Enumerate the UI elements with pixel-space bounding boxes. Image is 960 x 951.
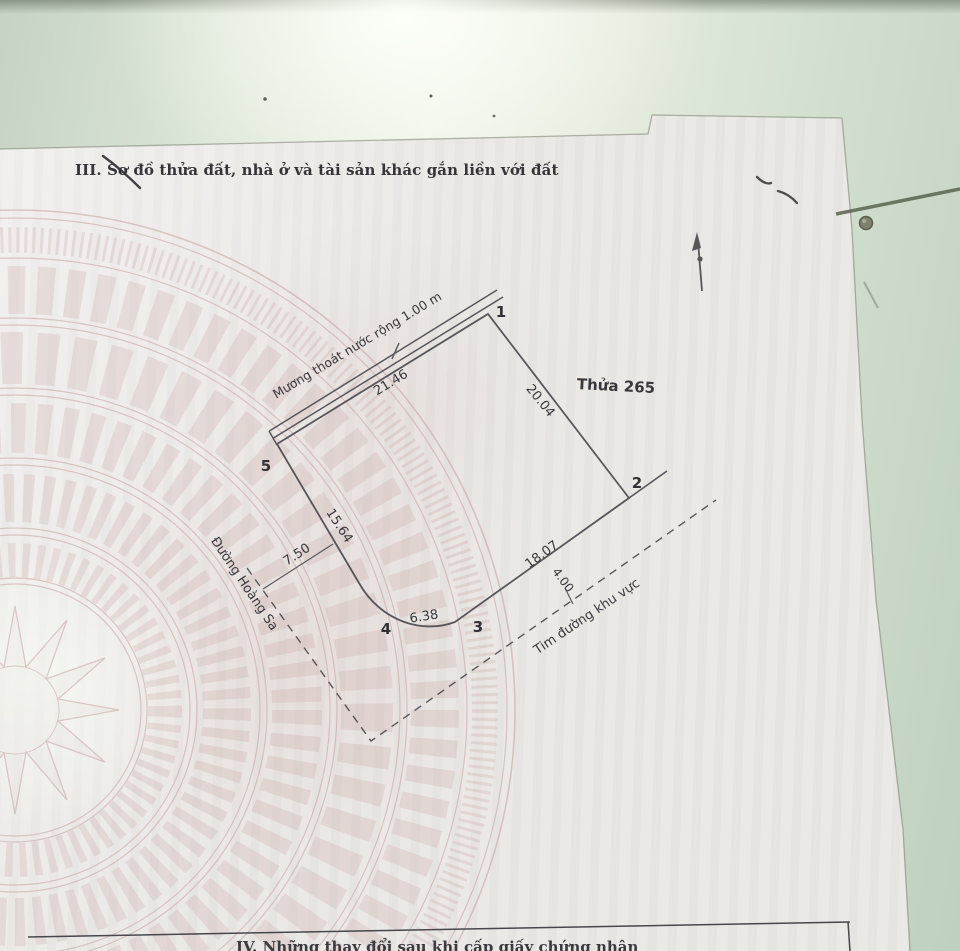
speck-2 <box>430 95 433 98</box>
vertex-label-2: 2 <box>632 474 642 492</box>
vertex-label-1: 1 <box>496 303 506 321</box>
scratch-on-glass <box>864 282 878 308</box>
speck-3 <box>493 115 496 118</box>
north-arrow <box>692 232 703 291</box>
screw-highlight <box>862 219 866 223</box>
cadastral-drawing <box>0 0 960 951</box>
screw <box>860 217 873 230</box>
pen-mark-2 <box>778 191 797 203</box>
next-section-title: IV. Những thay đổi sau khi cấp giấy chứn… <box>236 938 638 951</box>
vertex-label-3: 3 <box>473 618 483 636</box>
photo-background: III. Sơ đồ thửa đất, nhà ở và tài sản kh… <box>0 0 960 951</box>
vertex-label-5: 5 <box>261 457 271 475</box>
section-title: III. Sơ đồ thửa đất, nhà ở và tài sản kh… <box>75 161 558 179</box>
wall-line <box>836 189 960 214</box>
speck-1 <box>263 97 267 101</box>
certificate-page: III. Sơ đồ thửa đất, nhà ở và tài sản kh… <box>0 0 960 951</box>
vertex-label-4: 4 <box>381 620 391 638</box>
pen-mark-1 <box>757 177 771 183</box>
